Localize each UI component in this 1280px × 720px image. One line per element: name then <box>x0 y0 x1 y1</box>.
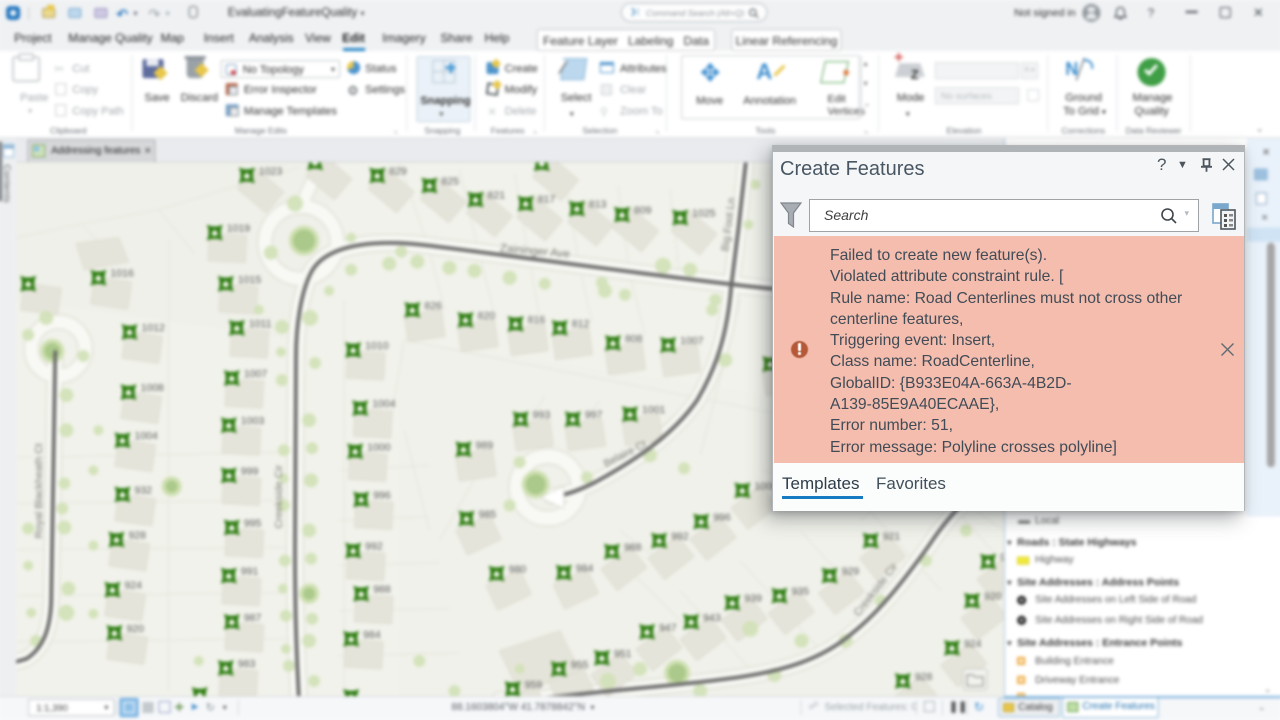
svg-text:1023: 1023 <box>259 165 283 177</box>
svg-text:951: 951 <box>614 648 632 660</box>
svg-text:Creekside Cir: Creekside Cir <box>273 464 285 528</box>
svg-text:1010: 1010 <box>365 340 389 352</box>
svg-text:935: 935 <box>791 586 809 598</box>
svg-text:1015: 1015 <box>238 274 262 286</box>
svg-text:Royal Blackheath Ct: Royal Blackheath Ct <box>33 443 45 538</box>
svg-text:817: 817 <box>538 194 556 206</box>
svg-text:1007: 1007 <box>244 368 268 380</box>
svg-text:829: 829 <box>389 165 407 177</box>
svg-text:991: 991 <box>241 566 259 578</box>
svg-text:997: 997 <box>585 409 603 421</box>
svg-text:959: 959 <box>525 679 543 691</box>
svg-text:993: 993 <box>533 409 551 421</box>
svg-text:984: 984 <box>363 629 381 641</box>
svg-text:928: 928 <box>915 671 933 683</box>
svg-text:955: 955 <box>571 659 589 671</box>
svg-text:999: 999 <box>241 465 259 477</box>
svg-text:988: 988 <box>624 542 642 554</box>
svg-text:932: 932 <box>134 484 152 496</box>
svg-text:1012: 1012 <box>142 322 166 334</box>
svg-text:816: 816 <box>528 314 546 326</box>
svg-text:1008: 1008 <box>141 382 165 394</box>
svg-text:996: 996 <box>713 511 731 523</box>
svg-text:924: 924 <box>964 638 982 650</box>
svg-text:980: 980 <box>509 564 527 576</box>
svg-text:924: 924 <box>124 580 142 592</box>
svg-text:928: 928 <box>128 530 146 542</box>
svg-text:996: 996 <box>373 489 391 501</box>
svg-text:947: 947 <box>659 622 677 634</box>
svg-text:943: 943 <box>703 612 721 624</box>
svg-text:1019: 1019 <box>227 223 251 235</box>
svg-text:920: 920 <box>984 591 1002 603</box>
svg-text:1004: 1004 <box>134 430 158 442</box>
svg-text:992: 992 <box>671 531 689 543</box>
svg-text:984: 984 <box>576 563 594 575</box>
svg-text:987: 987 <box>244 612 262 624</box>
svg-text:821: 821 <box>488 190 506 202</box>
svg-text:929: 929 <box>842 566 860 578</box>
svg-text:920: 920 <box>126 623 144 635</box>
svg-text:1016: 1016 <box>110 268 134 280</box>
svg-text:1004: 1004 <box>372 398 396 410</box>
svg-text:812: 812 <box>572 318 590 330</box>
svg-text:826: 826 <box>424 300 442 312</box>
svg-text:809: 809 <box>634 205 652 217</box>
svg-text:1001: 1001 <box>642 404 666 416</box>
svg-text:820: 820 <box>478 310 496 322</box>
svg-text:995: 995 <box>244 517 262 529</box>
svg-text:939: 939 <box>744 593 762 605</box>
svg-text:985: 985 <box>479 508 497 520</box>
svg-text:992: 992 <box>365 541 383 553</box>
svg-text:983: 983 <box>238 658 256 670</box>
svg-text:989: 989 <box>476 439 494 451</box>
svg-text:1000: 1000 <box>367 441 391 453</box>
svg-text:1025: 1025 <box>692 208 716 220</box>
svg-text:825: 825 <box>441 175 459 187</box>
svg-text:921: 921 <box>883 531 901 543</box>
svg-text:1011: 1011 <box>249 318 272 330</box>
svg-text:988: 988 <box>373 584 391 596</box>
svg-text:1003: 1003 <box>241 415 265 427</box>
svg-text:813: 813 <box>589 199 607 211</box>
svg-text:1007: 1007 <box>680 335 704 347</box>
svg-text:808: 808 <box>625 333 643 345</box>
